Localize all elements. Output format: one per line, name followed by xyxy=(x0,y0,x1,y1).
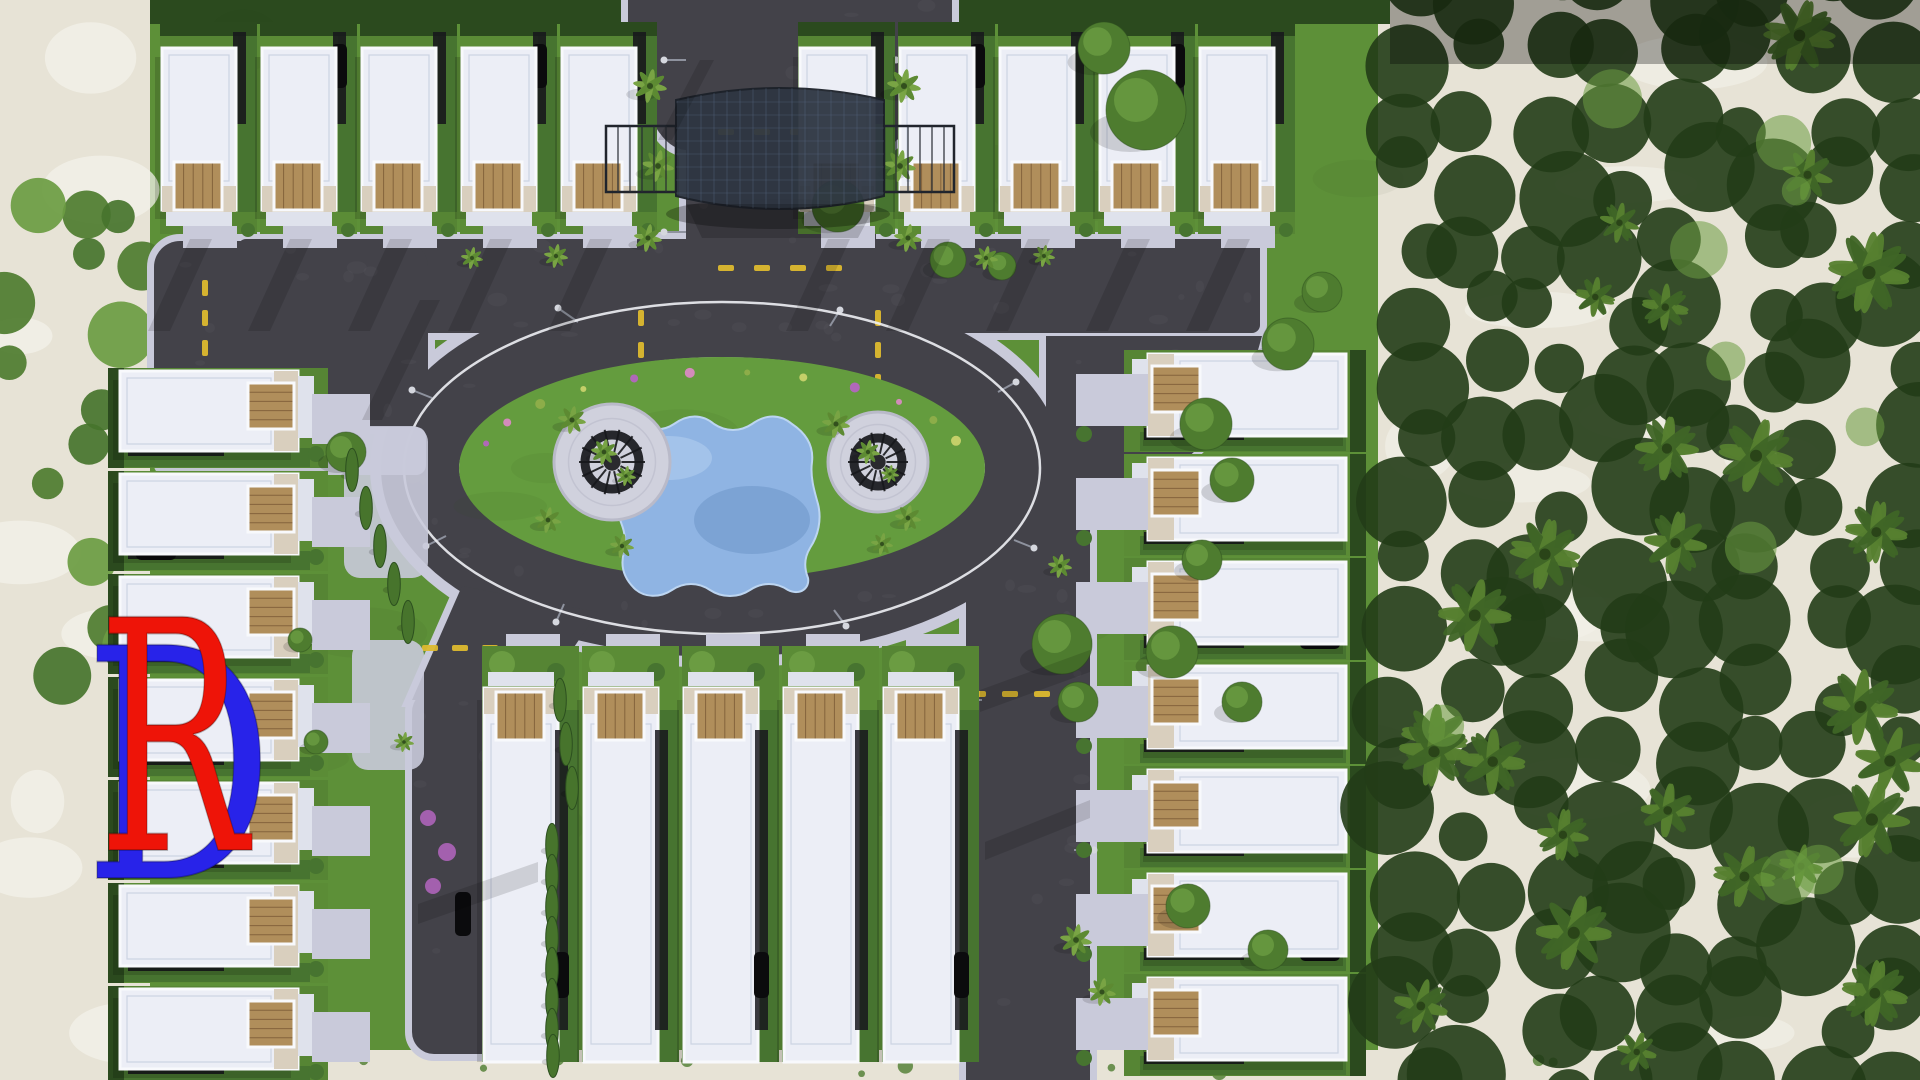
speed-bump xyxy=(638,342,644,358)
street-light xyxy=(553,619,560,626)
road-speckle xyxy=(857,591,872,602)
terrace xyxy=(566,212,632,226)
masterplan-scene: D R xyxy=(0,0,1920,1080)
front-bush xyxy=(1079,223,1093,237)
rear-hedge xyxy=(1350,870,1366,972)
forest-palm-crown xyxy=(1862,266,1875,279)
house-bottom-5 xyxy=(877,634,979,1062)
forest-palm-crown xyxy=(1469,610,1481,622)
flower xyxy=(896,399,902,405)
forest-light-tree xyxy=(1794,845,1844,895)
forest-palm-crown xyxy=(1416,1002,1425,1011)
forest-canopy xyxy=(1457,863,1526,932)
forest-palm-crown xyxy=(1539,549,1550,560)
cypress-tree xyxy=(388,562,401,605)
flower xyxy=(850,382,860,392)
villa-roof xyxy=(884,688,958,1062)
forest-canopy xyxy=(1728,716,1783,771)
leafy-tree-highlight xyxy=(306,732,319,745)
park-mottle xyxy=(454,492,547,521)
forest-palm-crown xyxy=(1750,450,1762,462)
palm-crown xyxy=(645,235,650,240)
road-speckle xyxy=(1076,360,1082,364)
street-light xyxy=(1031,545,1038,552)
front-bush xyxy=(541,223,555,237)
terrace xyxy=(298,788,314,850)
entrance-court xyxy=(1212,162,1260,210)
front-bush xyxy=(1076,426,1092,442)
forest-palm-crown xyxy=(1870,988,1881,999)
edge-vegetation xyxy=(32,468,64,500)
palm-crown xyxy=(620,544,624,548)
driveway xyxy=(1076,998,1148,1050)
front-bush xyxy=(241,223,255,237)
forest-palm-crown xyxy=(1487,756,1497,766)
road-speckle xyxy=(882,284,899,293)
forest-palm-crown xyxy=(1662,443,1672,453)
terrace xyxy=(1004,212,1070,226)
flower xyxy=(535,399,545,409)
road-speckle xyxy=(195,360,205,365)
terrace xyxy=(1204,212,1270,226)
palm-crown xyxy=(1099,989,1104,994)
road-speckle xyxy=(1073,774,1090,784)
driveway xyxy=(1076,894,1148,946)
terrace xyxy=(298,891,314,953)
entrance-court xyxy=(274,162,322,210)
entrance-court xyxy=(1012,162,1060,210)
terrace xyxy=(298,479,314,541)
palm-crown xyxy=(905,235,910,240)
shadow-streak xyxy=(686,204,876,238)
edge-vegetation xyxy=(11,178,66,233)
palm-crown xyxy=(866,450,870,454)
forest-palm-crown xyxy=(1803,171,1811,179)
road-speckle xyxy=(668,319,680,326)
house-top-left-1 xyxy=(155,22,257,248)
forest-light-tree xyxy=(1725,522,1777,574)
terrace xyxy=(266,212,332,226)
bottom-shrub xyxy=(1108,1064,1116,1072)
cypress-tree xyxy=(402,600,415,643)
road-speckle xyxy=(1057,589,1068,603)
road-speckle xyxy=(296,273,309,281)
entrance-court xyxy=(248,383,294,429)
driveway xyxy=(1076,582,1148,634)
front-bush xyxy=(1179,223,1193,237)
bottom-shrub xyxy=(480,1065,487,1072)
road-speckle xyxy=(1032,894,1043,905)
road-speckle xyxy=(1149,315,1168,325)
forest-light-tree xyxy=(1846,407,1885,446)
road-speckle xyxy=(815,321,828,330)
flower xyxy=(951,436,961,446)
leafy-tree-highlight xyxy=(1226,686,1248,708)
terrace xyxy=(166,212,232,226)
street-light xyxy=(661,229,668,236)
forest-canopy xyxy=(1440,975,1489,1024)
front-bush xyxy=(308,755,324,771)
palm-crown xyxy=(984,256,988,260)
forest-light-tree xyxy=(1756,115,1811,170)
forest-canopy xyxy=(1378,531,1429,582)
forest-canopy xyxy=(1362,586,1448,672)
terrace xyxy=(904,212,970,226)
rear-hedge xyxy=(1350,350,1366,452)
speed-bump xyxy=(754,265,770,271)
road-speckle xyxy=(432,948,440,954)
entrance-court xyxy=(796,692,844,740)
forest-canopy xyxy=(1439,812,1488,861)
front-bush xyxy=(308,858,324,874)
villa-roof xyxy=(684,688,758,1062)
forest-palm-crown xyxy=(1559,831,1567,839)
speed-bump xyxy=(875,342,881,358)
driveway xyxy=(1076,478,1148,530)
terrace xyxy=(788,672,854,686)
driveway xyxy=(1076,374,1148,426)
forest-light-tree xyxy=(1583,69,1642,128)
entrance-court xyxy=(374,162,422,210)
speed-bump xyxy=(452,645,468,651)
carport-pergola xyxy=(855,730,868,1030)
leafy-tree-highlight xyxy=(1185,403,1214,432)
forest-light-tree xyxy=(1670,221,1728,279)
front-bush xyxy=(308,549,324,565)
flowering-bush xyxy=(425,878,441,894)
entrance-court xyxy=(174,162,222,210)
leafy-tree-highlight xyxy=(1038,620,1071,653)
sand-patch xyxy=(11,770,65,833)
flower xyxy=(685,368,695,378)
entrance-court xyxy=(574,162,622,210)
road-speckle xyxy=(748,609,763,618)
palm-crown xyxy=(906,516,911,521)
road-speckle xyxy=(732,322,747,332)
speed-bump xyxy=(638,310,644,326)
palm-crown xyxy=(655,163,661,169)
road-speckle xyxy=(844,13,858,17)
entrance-court xyxy=(1152,470,1200,516)
carport-pergola xyxy=(655,730,668,1030)
speed-bump xyxy=(202,280,208,296)
hedge-top-east xyxy=(948,0,1390,24)
forest-canopy xyxy=(1560,976,1635,1051)
front-bush xyxy=(308,1064,324,1080)
rear-hedge xyxy=(1350,558,1366,660)
forest-canopy xyxy=(1780,202,1836,258)
palm-crown xyxy=(647,83,653,89)
front-bush xyxy=(1076,530,1092,546)
forest-palm-crown xyxy=(1871,527,1881,537)
flower xyxy=(483,440,489,446)
leafy-tree-highlight xyxy=(1083,27,1112,56)
edge-vegetation xyxy=(88,302,154,368)
edge-vegetation xyxy=(33,647,91,705)
entrance-court xyxy=(596,692,644,740)
leafy-tree-highlight xyxy=(1267,323,1296,352)
flower xyxy=(744,370,750,376)
logo: D R xyxy=(84,553,274,954)
flower xyxy=(630,374,638,382)
entrance-court xyxy=(896,692,944,740)
terrace xyxy=(298,376,314,438)
forest-palm-crown xyxy=(1568,927,1580,939)
leafy-tree-highlight xyxy=(1252,934,1274,956)
palm-crown xyxy=(602,450,607,455)
villa-roof xyxy=(784,688,858,1062)
flower xyxy=(580,386,586,392)
forest-palm-crown xyxy=(1884,755,1895,766)
forest-canopy xyxy=(1765,319,1850,404)
road-speckle xyxy=(704,608,721,619)
palm-crown xyxy=(1058,564,1062,568)
road-speckle xyxy=(621,601,628,611)
forest-palm-crown xyxy=(1661,303,1669,311)
palm-crown xyxy=(888,472,891,475)
cypress-tree xyxy=(554,678,567,721)
edge-vegetation xyxy=(73,238,105,270)
terrace xyxy=(298,994,314,1056)
entrance-court xyxy=(1152,678,1200,724)
forest-palm-crown xyxy=(1866,813,1878,825)
leafy-tree-highlight xyxy=(1151,631,1180,660)
entrance-court xyxy=(696,692,744,740)
bottom-shrub xyxy=(858,1070,865,1077)
forest-canopy xyxy=(1502,278,1552,328)
villa-block-top-left xyxy=(155,22,657,248)
leafy-tree-highlight xyxy=(1186,544,1208,566)
entrance-court xyxy=(1152,782,1200,828)
palm-crown xyxy=(1073,937,1079,943)
forest-canopy xyxy=(1776,420,1836,480)
road-speckle xyxy=(1005,580,1015,592)
house-top-left-3 xyxy=(355,22,457,248)
forest-canopy xyxy=(1493,593,1578,678)
front-bush xyxy=(979,223,993,237)
road-speckle xyxy=(882,594,896,598)
palm-crown xyxy=(624,474,628,478)
entrance-court xyxy=(474,162,522,210)
flower xyxy=(503,418,511,426)
driveway xyxy=(312,600,370,650)
road-speckle xyxy=(1018,585,1037,593)
forest-light-tree xyxy=(1706,341,1745,380)
forest-canopy xyxy=(1376,136,1428,188)
terrace xyxy=(488,672,554,686)
driveway xyxy=(312,909,370,959)
front-bush xyxy=(879,223,893,237)
front-bush xyxy=(308,652,324,668)
terrace xyxy=(366,212,432,226)
terrace xyxy=(588,672,654,686)
forest-canopy xyxy=(1585,639,1658,712)
forest-light-tree xyxy=(1782,176,1811,205)
terrace xyxy=(688,672,754,686)
entrance-court xyxy=(1112,162,1160,210)
palm-crown xyxy=(833,421,838,426)
front-bush xyxy=(1279,223,1293,237)
forest-palm-crown xyxy=(1616,220,1622,226)
logo-letter-r: R xyxy=(98,553,253,926)
palm-crown xyxy=(554,254,558,258)
front-bush xyxy=(1076,842,1092,858)
road-speckle xyxy=(1059,878,1074,886)
speed-bump xyxy=(202,340,208,356)
street-light xyxy=(661,57,668,64)
palm-crown xyxy=(569,417,574,422)
road-speckle xyxy=(831,333,841,342)
edge-vegetation xyxy=(68,424,109,465)
leafy-tree-highlight xyxy=(1062,686,1084,708)
street-light xyxy=(843,623,850,630)
road-speckle xyxy=(997,998,1011,1006)
forest-palm-crown xyxy=(1428,746,1439,757)
house-bottom-2 xyxy=(577,634,679,1062)
cypress-tree xyxy=(374,524,387,567)
house-bottom-3 xyxy=(677,634,779,1062)
leafy-tree-highlight xyxy=(1170,888,1194,912)
cypress-tree xyxy=(547,1034,560,1077)
road-speckle xyxy=(463,384,476,388)
palm-crown xyxy=(880,542,884,546)
palm-crown xyxy=(402,740,406,744)
entrance-court xyxy=(1152,990,1200,1036)
forest-canopy xyxy=(1785,478,1843,536)
entrance-court xyxy=(248,1001,294,1047)
house-bottom-4 xyxy=(777,634,879,1062)
road-speckle xyxy=(641,620,647,627)
parked-car xyxy=(754,952,769,998)
cypress-tree xyxy=(566,766,579,809)
road-speckle xyxy=(459,548,471,555)
road-speckle xyxy=(514,565,524,576)
road-speckle xyxy=(1178,294,1184,300)
forest-palm-crown xyxy=(1592,294,1598,300)
road-speckle xyxy=(1243,292,1251,303)
street-light xyxy=(1013,379,1020,386)
speed-bump xyxy=(718,265,734,271)
forest-canopy xyxy=(1466,329,1529,392)
front-bush xyxy=(308,961,324,977)
flower xyxy=(929,416,937,424)
parked-car xyxy=(954,952,969,998)
leafy-tree-highlight xyxy=(290,630,303,643)
gate-canopy xyxy=(676,88,884,209)
house-top-left-2 xyxy=(255,22,357,248)
house-top-left-4 xyxy=(455,22,557,248)
terrace xyxy=(466,212,532,226)
road-speckle xyxy=(431,518,437,525)
road-speckle xyxy=(414,780,427,788)
villa-roof xyxy=(584,688,658,1062)
road-speckle xyxy=(1196,281,1204,293)
street-light xyxy=(409,387,416,394)
forest-top-shade xyxy=(1390,0,1920,64)
front-bush xyxy=(341,223,355,237)
forest-palm-crown xyxy=(1670,538,1680,548)
road-speckle xyxy=(458,553,469,558)
speed-bump xyxy=(1034,691,1050,697)
forest-palm-crown xyxy=(1634,1049,1640,1055)
front-bush xyxy=(441,223,455,237)
house-top-right-5 xyxy=(1193,22,1295,248)
front-bush xyxy=(1076,738,1092,754)
forest-palm-crown xyxy=(1663,806,1672,815)
forest-light-tree xyxy=(1422,705,1464,747)
leafy-tree-highlight xyxy=(1306,276,1328,298)
flower xyxy=(799,373,807,381)
terrace xyxy=(1104,212,1170,226)
road-speckle xyxy=(561,332,578,337)
cypress-tree xyxy=(346,448,359,491)
aerial-render: D R xyxy=(0,0,1920,1080)
forest-canopy xyxy=(1431,91,1492,152)
forest-canopy xyxy=(1575,717,1641,783)
speed-bump xyxy=(202,310,208,326)
forest-palm-crown xyxy=(1739,872,1749,882)
flowering-bush xyxy=(420,810,436,826)
cypress-tree xyxy=(560,722,573,765)
forest-canopy xyxy=(1340,761,1434,855)
road-speckle xyxy=(694,309,711,319)
road-speckle xyxy=(487,293,507,307)
forest-canopy xyxy=(1720,644,1792,716)
forest-canopy xyxy=(1448,461,1515,528)
leafy-tree-highlight xyxy=(1114,78,1158,122)
palm-crown xyxy=(470,256,474,260)
cypress-tree xyxy=(360,486,373,529)
forest-canopy xyxy=(1699,956,1782,1039)
front-bush xyxy=(1076,1050,1092,1066)
palm-crown xyxy=(546,518,551,523)
pool-shadow xyxy=(694,486,810,554)
edge-vegetation xyxy=(101,200,134,233)
speed-bump xyxy=(790,265,806,271)
forest-palm-crown xyxy=(1854,701,1866,713)
leafy-tree-highlight xyxy=(1214,462,1238,486)
speed-bump xyxy=(422,645,438,651)
sand-patch xyxy=(45,22,136,93)
entrance-court xyxy=(496,692,544,740)
terrace xyxy=(888,672,954,686)
driveway xyxy=(312,1012,370,1062)
palm-crown xyxy=(897,163,903,169)
entrance-court xyxy=(248,486,294,532)
palm-crown xyxy=(901,83,907,89)
driveway xyxy=(312,806,370,856)
flowering-bush xyxy=(438,843,456,861)
road-speckle xyxy=(513,322,528,328)
road-speckle xyxy=(458,701,468,706)
